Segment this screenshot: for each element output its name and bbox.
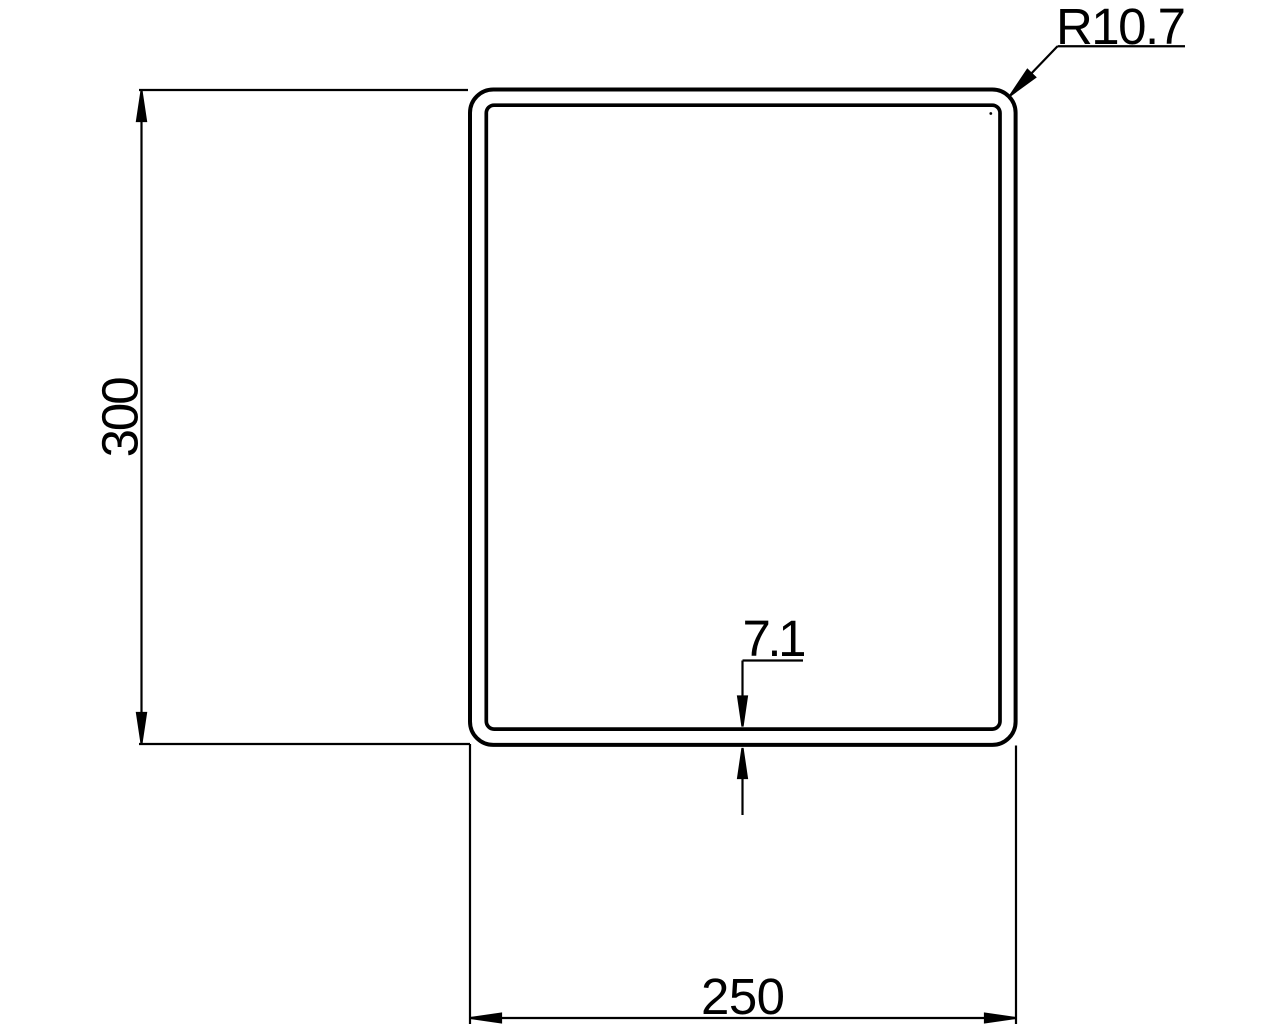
svg-text:250: 250 — [701, 968, 785, 1024]
svg-text:300: 300 — [92, 376, 149, 457]
svg-text:R10.7: R10.7 — [1056, 0, 1186, 55]
svg-text:7.1: 7.1 — [743, 610, 807, 667]
